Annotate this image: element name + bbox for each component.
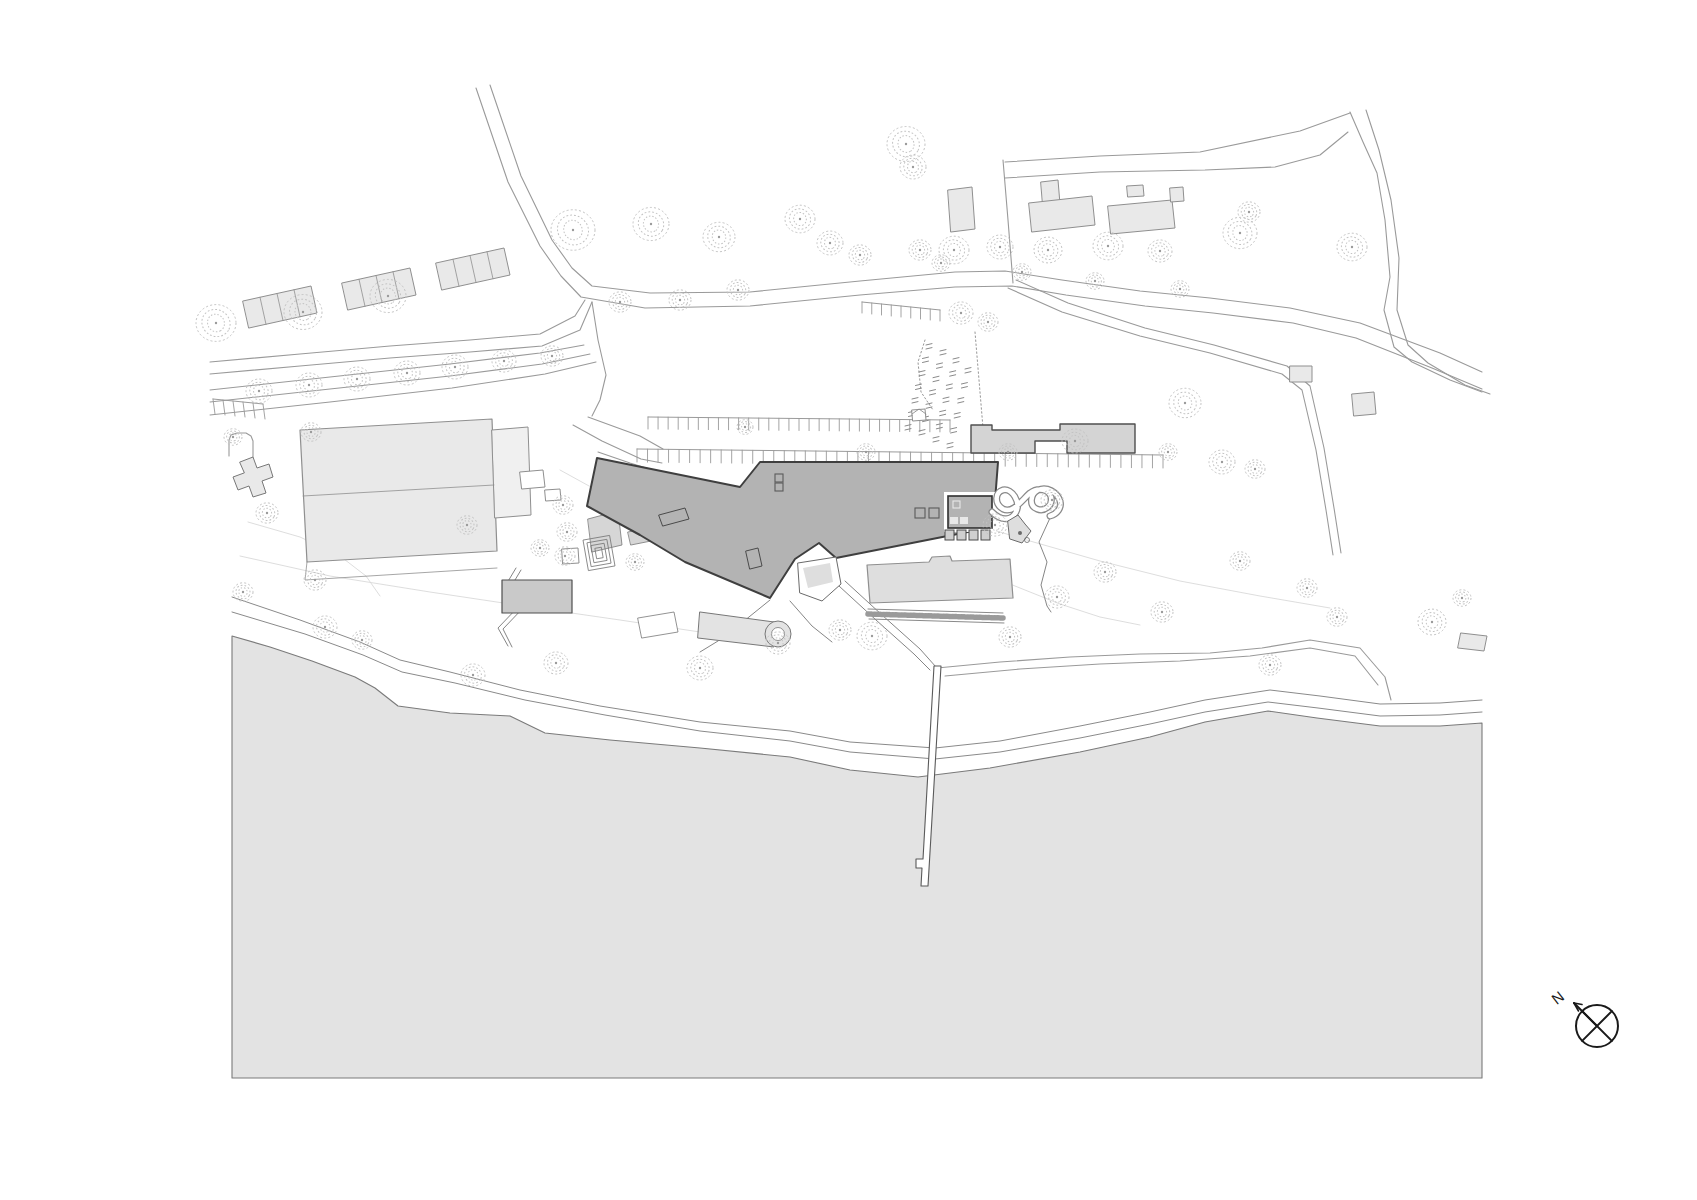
garden-hatch-mark	[940, 410, 946, 411]
garden-hatch-mark	[961, 387, 967, 388]
tree-trunk-dot	[1107, 245, 1109, 247]
compass-north-arm	[1574, 1003, 1597, 1026]
tree-trunk-dot	[406, 372, 408, 374]
tree-trunk-dot	[266, 512, 268, 514]
road-line	[588, 417, 663, 449]
tree-trunk-dot	[1056, 596, 1058, 598]
garden-hatch-mark	[919, 434, 925, 435]
road-line	[210, 354, 590, 402]
terrace-rectangle	[502, 580, 572, 613]
tree-trunk-dot	[324, 626, 326, 628]
tree-icon	[1093, 232, 1123, 260]
tree-icon	[296, 373, 322, 397]
parking-stall-tick	[243, 402, 245, 417]
tree-trunk-dot	[1184, 402, 1186, 404]
tree-icon	[829, 620, 851, 641]
north-shed-1	[1127, 185, 1144, 197]
tree-trunk-dot	[314, 579, 316, 581]
tree-icon	[1094, 562, 1116, 583]
tree-icon	[939, 236, 969, 264]
tree-icon	[233, 583, 253, 602]
tree-trunk-dot	[744, 426, 746, 428]
notched-building	[971, 424, 1135, 453]
parking-stall-tick	[223, 400, 225, 415]
garden-hatch-mark	[940, 354, 946, 355]
tree-trunk-dot	[912, 166, 914, 168]
north-shed-2	[1170, 187, 1184, 202]
road-line	[490, 85, 1482, 372]
tree-icon	[817, 231, 843, 255]
slope-quad-3	[638, 612, 678, 638]
garden-hatch-mark	[961, 383, 967, 384]
tree-trunk-dot	[987, 321, 989, 323]
tree-trunk-dot	[777, 642, 779, 644]
tree-icon	[1086, 273, 1104, 290]
pool-inner	[772, 628, 785, 641]
tree-trunk-dot	[1051, 499, 1053, 501]
tree-icon	[246, 379, 272, 403]
road-line	[210, 345, 584, 390]
garden-hatch-mark	[923, 361, 929, 362]
tree-trunk-dot	[1009, 636, 1011, 638]
tree-trunk-dot	[551, 355, 553, 357]
tree-icon	[196, 304, 236, 341]
garden-hatch-mark	[965, 368, 971, 369]
walkway-line	[790, 601, 832, 642]
tree-trunk-dot	[1269, 664, 1271, 666]
garden-hatch-mark	[926, 344, 932, 345]
tree-trunk-dot	[634, 561, 636, 563]
tree-icon	[857, 444, 875, 461]
tree-trunk-dot	[839, 629, 841, 631]
tree-trunk-dot	[960, 312, 962, 314]
parking-baseline	[213, 399, 263, 404]
tree-icon	[785, 205, 815, 233]
tree-icon	[999, 627, 1021, 648]
tree-icon	[1259, 655, 1281, 676]
tree-trunk-dot	[1306, 587, 1308, 589]
tree-trunk-dot	[1021, 271, 1023, 273]
garden-hatch-mark	[933, 437, 939, 438]
garden-hatch-mark	[926, 348, 932, 349]
tree-icon	[224, 429, 242, 446]
tree-trunk-dot	[302, 311, 304, 313]
garden-hatch-mark	[954, 417, 960, 418]
garden-hatch-mark	[953, 358, 959, 359]
tree-icon	[687, 656, 713, 680]
tree-trunk-dot	[1239, 560, 1241, 562]
garden-hatch-mark	[947, 447, 953, 448]
tree-trunk-dot	[737, 289, 739, 291]
road-line	[573, 425, 662, 463]
parking-stall-tick	[263, 404, 265, 419]
garden-hatch-mark	[919, 375, 925, 376]
tree-trunk-dot	[258, 390, 260, 392]
tree-trunk-dot	[310, 431, 312, 433]
tree-trunk-dot	[503, 360, 505, 362]
tree-icon	[304, 570, 326, 591]
tree-trunk-dot	[650, 223, 652, 225]
tree-icon	[544, 652, 568, 674]
tree-trunk-dot	[994, 524, 996, 526]
east-shed-2	[1352, 392, 1376, 416]
tree-trunk-dot	[919, 249, 921, 251]
tree-icon	[900, 155, 926, 179]
garden-hatch-mark	[940, 350, 946, 351]
playground-rock	[1008, 515, 1031, 543]
road-line	[210, 362, 596, 415]
road-line	[476, 88, 1482, 389]
garden-hatch-mark	[943, 397, 949, 398]
tree-icon	[313, 616, 337, 638]
pool-body	[698, 612, 774, 647]
water-body	[232, 636, 1482, 1078]
tree-icon	[987, 235, 1013, 259]
garden-hatch-mark	[946, 384, 952, 385]
tree-trunk-dot	[572, 229, 574, 231]
road-line	[1005, 113, 1350, 162]
tree-icon	[633, 207, 669, 241]
tree-trunk-dot	[619, 301, 621, 303]
road-line	[1366, 110, 1490, 394]
garden-hatch-mark	[933, 376, 939, 377]
tree-icon	[1159, 444, 1177, 461]
tree-icon	[256, 503, 278, 524]
road-line	[1005, 132, 1348, 178]
roof-vent-square	[957, 530, 966, 540]
tree-trunk-dot	[859, 254, 861, 256]
garden-hatch-mark	[950, 371, 956, 372]
tree-trunk-dot	[356, 378, 358, 380]
garden-hatch-mark	[933, 380, 939, 381]
tree-icon	[626, 554, 644, 571]
tree-trunk-dot	[1007, 451, 1009, 453]
tree-icon	[909, 240, 931, 261]
tree-trunk-dot	[940, 262, 942, 264]
garden-hatch-mark	[936, 423, 942, 424]
garden-hatch-mark	[947, 443, 953, 444]
tree-trunk-dot	[242, 591, 244, 593]
garden-hatch-mark	[912, 398, 918, 399]
garden-hatch-mark	[940, 414, 946, 415]
garden-hatch-mark	[954, 413, 960, 414]
tree-trunk-dot	[466, 524, 468, 526]
garden-hatch-mark	[951, 432, 957, 433]
annex-filled-square	[960, 517, 968, 524]
tree-trunk-dot	[454, 366, 456, 368]
playground-dot	[1018, 531, 1022, 535]
garden-hatch-mark	[953, 362, 959, 363]
tree-trunk-dot	[1159, 250, 1161, 252]
tree-trunk-dot	[679, 299, 681, 301]
tree-icon	[1238, 202, 1260, 223]
tree-icon	[531, 540, 549, 557]
tree-icon	[737, 420, 753, 435]
tree-trunk-dot	[1167, 451, 1169, 453]
tree-trunk-dot	[1239, 232, 1241, 234]
tree-icon	[557, 523, 577, 542]
tree-trunk-dot	[1179, 288, 1181, 290]
tree-icon	[1418, 609, 1446, 635]
tree-icon	[1013, 264, 1031, 281]
tree-trunk-dot	[1047, 249, 1049, 251]
tree-trunk-dot	[1461, 597, 1463, 599]
tree-trunk-dot	[361, 639, 363, 641]
garden-hatch-mark	[912, 402, 918, 403]
tree-trunk-dot	[555, 662, 557, 664]
tree-trunk-dot	[1104, 571, 1106, 573]
tree-trunk-dot	[799, 218, 801, 220]
compass-label: N	[1548, 988, 1567, 1008]
tree-icon	[932, 255, 950, 272]
garden-hatch-mark	[951, 428, 957, 429]
site-plan: N	[0, 0, 1697, 1200]
tree-icon	[1327, 608, 1347, 627]
garden-hatch-mark	[958, 402, 964, 403]
tree-trunk-dot	[699, 667, 701, 669]
tree-icon	[849, 245, 871, 266]
tree-trunk-dot	[953, 249, 955, 251]
tree-icon	[1169, 388, 1201, 418]
garden-hatch-mark	[937, 367, 943, 368]
road-line	[1350, 112, 1482, 392]
tree-trunk-dot	[829, 242, 831, 244]
parking-stall-tick	[233, 401, 235, 416]
tree-icon	[1230, 552, 1250, 571]
tree-trunk-dot	[1094, 280, 1096, 282]
roof-vent-square	[969, 530, 978, 540]
tree-trunk-dot	[472, 674, 474, 676]
annex-filled-square	[950, 517, 958, 524]
garden-hatch-mark	[936, 427, 942, 428]
tree-icon	[609, 292, 631, 313]
service-building-1	[520, 470, 545, 489]
tree-trunk-dot	[1074, 440, 1076, 442]
tree-trunk-dot	[999, 246, 1001, 248]
tree-trunk-dot	[539, 547, 541, 549]
cross-house	[233, 457, 273, 497]
garden-hatch-mark	[943, 401, 949, 402]
east-shed-1	[1290, 366, 1312, 382]
tree-icon	[461, 664, 485, 686]
road-line	[1003, 160, 1013, 283]
roof-vent-square	[945, 530, 954, 540]
tree-trunk-dot	[564, 555, 566, 557]
tree-icon	[1337, 233, 1367, 261]
roof-vent-square	[981, 530, 990, 540]
long-building	[867, 556, 1013, 603]
detail-line	[305, 562, 497, 580]
tree-trunk-dot	[562, 504, 564, 506]
tree-trunk-dot	[1336, 616, 1338, 618]
tree-trunk-dot	[1351, 246, 1353, 248]
tree-trunk-dot	[308, 384, 310, 386]
garden-hatch-mark	[965, 372, 971, 373]
tree-trunk-dot	[1248, 211, 1250, 213]
tree-icon	[1148, 240, 1172, 262]
tree-trunk-dot	[215, 322, 217, 324]
fence-dotted	[918, 340, 933, 410]
tree-trunk-dot	[1221, 461, 1223, 463]
tree-icon	[1034, 237, 1062, 263]
tree-icon	[1297, 579, 1317, 598]
tree-trunk-dot	[718, 236, 720, 238]
tree-icon	[1151, 602, 1173, 623]
tree-trunk-dot	[1161, 611, 1163, 613]
north-building-1	[948, 187, 975, 232]
terrace-steps	[583, 535, 615, 570]
fence-dotted	[975, 332, 983, 428]
tree-trunk-dot	[865, 451, 867, 453]
garden-hatch-mark	[919, 371, 925, 372]
retaining-wall-hatch	[868, 614, 1003, 618]
tree-trunk-dot	[387, 295, 389, 297]
tree-icon	[1453, 590, 1471, 607]
north-building-3	[1108, 200, 1175, 234]
tree-icon	[949, 302, 973, 324]
north-building-2b	[1029, 196, 1095, 232]
garden-hatch-mark	[946, 388, 952, 389]
tree-icon	[1209, 450, 1235, 474]
tree-icon	[492, 350, 516, 372]
tree-trunk-dot	[905, 143, 907, 145]
garden-hatch-mark	[950, 375, 956, 376]
tree-trunk-dot	[232, 436, 234, 438]
tree-icon	[1045, 586, 1069, 608]
tree-icon	[978, 313, 998, 332]
garden-hatch-mark	[930, 390, 936, 391]
garden-hatch-mark	[937, 363, 943, 364]
shore-shed	[1458, 633, 1487, 651]
tree-icon	[703, 222, 735, 252]
tree-icon	[1245, 460, 1265, 479]
garden-hatch-mark	[930, 394, 936, 395]
tree-icon	[551, 209, 595, 250]
tree-trunk-dot	[1254, 468, 1256, 470]
tree-icon	[727, 280, 749, 301]
site-plan-canvas: N	[0, 0, 1697, 1200]
tree-trunk-dot	[1431, 621, 1433, 623]
garden-hatch-mark	[923, 357, 929, 358]
road-line	[592, 302, 606, 416]
garden-hatch-mark	[958, 398, 964, 399]
tree-trunk-dot	[871, 635, 873, 637]
tree-trunk-dot	[566, 531, 568, 533]
garden-hatch-mark	[933, 441, 939, 442]
garden-kiosk	[912, 409, 926, 421]
